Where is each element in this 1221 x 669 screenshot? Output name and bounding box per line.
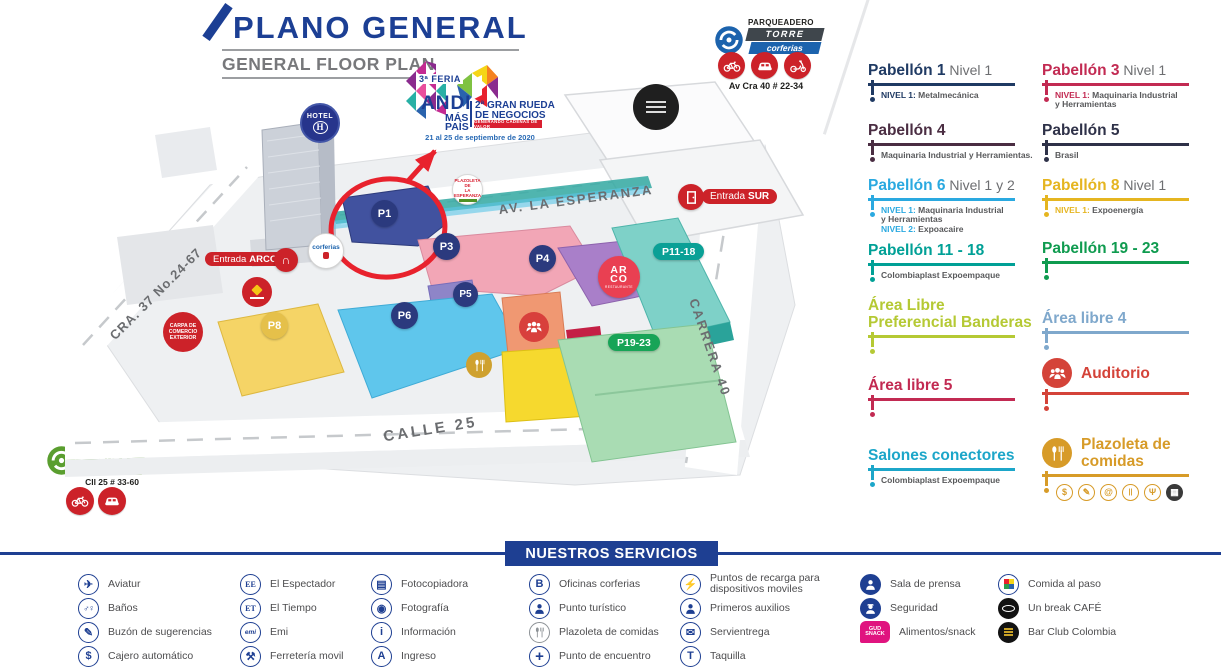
fork-icon: Ψ [1144, 484, 1161, 501]
service-item: TTaquilla [680, 646, 860, 667]
legend-entry-title: Auditorio [1081, 365, 1150, 382]
legend-entry-title: Salones conectores [868, 447, 1014, 464]
pavilion-p3-badge: P3 [433, 233, 460, 260]
service-label: El Espectador [270, 579, 335, 590]
service-item: ETEl Tiempo [240, 598, 371, 619]
service-item: +Punto de encuentro [529, 646, 680, 667]
car-icon [751, 52, 778, 79]
gudsnack-icon: GUDSNACK [860, 621, 890, 643]
firstaid-icon [680, 598, 701, 619]
service-label: Baños [108, 603, 138, 614]
legend-entry: Pabellón 6 Nivel 1 y 2NIVEL 1: Maquinari… [868, 177, 1036, 234]
service-label: Cajero automático [108, 651, 193, 662]
services-banner: NUESTROS SERVICIOS [505, 541, 718, 566]
legend-entry-sub: NIVEL 1: Maquinaria Industrialy Herramie… [1055, 91, 1221, 110]
service-label: Punto turístico [559, 603, 626, 614]
legend-entry-sub: Maquinaria Industrial y Herramientas. [881, 151, 1036, 161]
dollar-icon: $ [78, 646, 99, 667]
legend-entry-title: Pabellón 11 - 18 [868, 242, 984, 259]
legend-entry: Pabellón 1 Nivel 1NIVEL 1: Metalmecánica [868, 62, 1036, 100]
legend-entry-title: Plazoleta de comidas [1081, 436, 1221, 470]
text-EE-icon: EE [240, 574, 261, 595]
door-icon [678, 184, 704, 210]
camera-icon: ◉ [371, 598, 392, 619]
service-item: iInformación [371, 622, 529, 643]
legend-entry: Pabellón 5Brasil [1042, 122, 1221, 160]
legend-entry-rule [868, 398, 1015, 401]
pavilion-p6-badge: P6 [391, 302, 418, 329]
parking-torre-label: PARQUEADERO [748, 18, 814, 27]
service-label: Primeros auxilios [710, 603, 790, 614]
plano-general-page: PLANO GENERAL GENERAL FLOOR PLAN 3ª FERI… [0, 0, 1221, 669]
market-icon: ▦ [1166, 484, 1183, 501]
service-label: Puntos de recarga para dispositivos movi… [710, 573, 834, 595]
service-label: Alimentos/snack [899, 627, 975, 638]
restroom-icon: ♂♀ [78, 598, 99, 619]
text-B-icon: B [529, 574, 550, 595]
service-item: ⚒Ferretería movil [240, 646, 371, 667]
service-label: Taquilla [710, 651, 746, 662]
legend-entry: Auditorio [1042, 358, 1221, 395]
service-label: Buzón de sugerencias [108, 627, 212, 638]
bike-icon [66, 487, 94, 515]
plane-icon: ✈ [78, 574, 99, 595]
legend-entry-rule [1042, 392, 1189, 395]
service-label: Información [401, 627, 456, 638]
legend-entry-sub: NIVEL 1: Maquinaria Industrialy Herramie… [881, 206, 1036, 235]
service-label: El Tiempo [270, 603, 317, 614]
legend-entry: Área libre 4 [1042, 310, 1221, 334]
service-label: Plazoleta de comidas [559, 627, 659, 638]
service-item: Seguridad [860, 598, 998, 619]
legend-entry-title: Área Libre Preferencial Banderas [868, 297, 1036, 331]
pavilion-p8-badge: P8 [261, 312, 288, 339]
legend-entry-rule [868, 468, 1015, 471]
legend-entry-title: Pabellón 4 [868, 122, 946, 139]
legend-entry: Pabellón 8 Nivel 1NIVEL 1: Expoenergía [1042, 177, 1221, 215]
agora-logo-badge [633, 84, 679, 130]
legend-entry: Área libre 5 [868, 377, 1036, 401]
legend-entry-sub: NIVEL 1: Expoenergía [1055, 206, 1221, 216]
legend-entry-sub: Colombiaplast Expoempaque [881, 271, 1036, 281]
pencil-icon: ✎ [78, 622, 99, 643]
pavilion-p11-18-badge: P11-18 [653, 243, 704, 260]
service-label: Oficinas corferias [559, 579, 640, 590]
moto-icon [784, 52, 811, 79]
legend-entry-rule [1042, 198, 1189, 201]
sponsor-logo-badge [242, 277, 272, 307]
cutlery-icon [472, 358, 487, 373]
hotel-h-mark: H [313, 121, 328, 134]
people-icon [1042, 358, 1072, 388]
service-label: Fotografía [401, 603, 449, 614]
service-item: ⚡Puntos de recarga para dispositivos mov… [680, 573, 860, 595]
service-label: Sala de prensa [890, 579, 961, 590]
bars-icon: || [1122, 484, 1139, 501]
plug-icon: ⚡ [680, 574, 701, 595]
title-divider [222, 49, 519, 51]
legend-entry: Pabellón 4Maquinaria Industrial y Herram… [868, 122, 1036, 160]
corferias-badge: corferias [308, 233, 344, 269]
legend-entry: Pabellón 3 Nivel 1NIVEL 1: Maquinaria In… [1042, 62, 1221, 110]
legend-entry-rule [1042, 83, 1189, 86]
meeting-icon: + [529, 646, 550, 667]
site-map [35, 75, 865, 545]
food-court-map-icon [466, 352, 492, 378]
legend-entry-title: Pabellón 19 - 23 [1042, 240, 1159, 257]
text-emi-icon: emi [240, 622, 261, 643]
legend-entry-rule [868, 335, 1015, 338]
auditorio-map-icon [519, 312, 549, 342]
legend-entry-title: Pabellón 6 Nivel 1 y 2 [868, 177, 1015, 194]
security-icon [860, 598, 881, 619]
legend-entry-sub: NIVEL 1: Metalmecánica [881, 91, 1036, 101]
service-item: ♂♀Baños [78, 598, 240, 619]
service-item: ✉Servientrega [680, 622, 860, 643]
legend-entry-rule [868, 143, 1015, 146]
legend-entry: Plazoleta de comidas$✎@||Ψ▦ [1042, 436, 1221, 501]
people-icon [525, 318, 543, 336]
legend-entry: Área Libre Preferencial Banderas [868, 297, 1036, 338]
foodtogo-icon [998, 574, 1019, 595]
cutlery-gray-icon [529, 622, 550, 643]
service-label: Ingreso [401, 651, 436, 662]
arco-restaurante-badge: AR CO RESTAURANTE [598, 256, 640, 298]
service-item: ▤Fotocopiadora [371, 574, 529, 595]
legend-entry-title: Pabellón 3 Nivel 1 [1042, 62, 1166, 79]
service-label: Seguridad [890, 603, 938, 614]
service-label: Fotocopiadora [401, 579, 468, 590]
service-item: Un break CAFÉ [998, 598, 1198, 619]
hammer-icon: ⚒ [240, 646, 261, 667]
car-icon [98, 487, 126, 515]
pavilion-p4-badge: P4 [529, 245, 556, 272]
hotel-badge: HOTEL H [300, 103, 340, 143]
press-icon [860, 574, 881, 595]
service-item: AIngreso [371, 646, 529, 667]
service-label: Servientrega [710, 627, 770, 638]
service-item: GUDSNACKAlimentos/snack [860, 621, 998, 643]
text-i-icon: i [371, 622, 392, 643]
text-T-icon: T [680, 646, 701, 667]
pencil-icon: ✎ [1078, 484, 1095, 501]
bike-icon [718, 52, 745, 79]
service-label: Ferretería movil [270, 651, 344, 662]
legend-entry: Pabellón 11 - 18Colombiaplast Expoempaqu… [868, 242, 1036, 280]
corferias-red-mark [323, 252, 329, 259]
page-title: PLANO GENERAL [233, 10, 528, 46]
at-icon: @ [1100, 484, 1117, 501]
tourist-icon [529, 598, 550, 619]
legend-entry: Salones conectoresColombiaplast Expoempa… [868, 447, 1036, 485]
envelope-icon: ✉ [680, 622, 701, 643]
service-item: Sala de prensa [860, 574, 998, 595]
pavilion-p5-badge: P5 [453, 282, 478, 307]
service-label: Comida al paso [1028, 579, 1101, 590]
services-grid: ✈Aviatur♂♀Baños✎Buzón de sugerencias$Caj… [78, 572, 1198, 668]
text-A-icon: A [371, 646, 392, 667]
service-label: Punto de encuentro [559, 651, 651, 662]
service-item: BOficinas corferias [529, 574, 680, 595]
service-label: Aviatur [108, 579, 141, 590]
parking-torre-swirl-icon [714, 25, 744, 55]
legend-entry-rule [868, 83, 1015, 86]
legend-entry-rule [1042, 474, 1189, 477]
legend-entry-rule [1042, 143, 1189, 146]
legend-entry-sub: Colombiaplast Expoempaque [881, 476, 1036, 486]
pavilion-p19-23-badge: P19-23 [608, 334, 660, 351]
service-item: ✈Aviatur [78, 574, 240, 595]
cutlery-icon [1042, 438, 1072, 468]
carpa-comercio-exterior-badge: CARPA DE COMERCIO EXTERIOR [163, 312, 203, 352]
legend-entry-title: Área libre 4 [1042, 310, 1126, 327]
service-item: $Cajero automático [78, 646, 240, 667]
legend-entry-rule [868, 198, 1015, 201]
service-label: Emi [270, 627, 288, 638]
legend-entry-title: Área libre 5 [868, 377, 952, 394]
service-item: Primeros auxilios [680, 598, 860, 619]
legend-entry-title: Pabellón 8 Nivel 1 [1042, 177, 1166, 194]
legend-entry: Pabellón 19 - 23 [1042, 240, 1221, 264]
legend-entry-title: Pabellón 5 [1042, 122, 1120, 139]
food-court-mini-icons: $✎@||Ψ▦ [1056, 484, 1221, 501]
dollar-icon: $ [1056, 484, 1073, 501]
text-ET-icon: ET [240, 598, 261, 619]
service-item: emiEmi [240, 622, 371, 643]
service-label: Bar Club Colombia [1028, 627, 1116, 638]
entrance-sur-label: Entrada SUR [702, 189, 777, 204]
legend-entry-rule [1042, 331, 1189, 334]
arch-icon: ∩ [274, 248, 298, 272]
service-item: ◉Fotografía [371, 598, 529, 619]
service-item: Punto turístico [529, 598, 680, 619]
barclub-icon [998, 622, 1019, 643]
plazoleta-esperanza-sign: PLAZOLETA DE LA ESPERANZA [452, 174, 483, 205]
service-item: ✎Buzón de sugerencias [78, 622, 240, 643]
oma-icon [998, 598, 1019, 619]
legend-entry-rule [868, 263, 1015, 266]
header-slash-decoration [202, 3, 232, 41]
service-item: Plazoleta de comidas [529, 622, 680, 643]
parking-torre-name: TORRE [745, 28, 824, 41]
service-item: Comida al paso [998, 574, 1198, 595]
legend-entry-title: Pabellón 1 Nivel 1 [868, 62, 992, 79]
service-label: Un break CAFÉ [1028, 603, 1102, 614]
service-item: Bar Club Colombia [998, 622, 1198, 643]
copier-icon: ▤ [371, 574, 392, 595]
pavilion-p1-badge: P1 [371, 200, 398, 227]
legend-entry-rule [1042, 261, 1189, 264]
legend-entry-sub: Brasil [1055, 151, 1221, 161]
service-item: EEEl Espectador [240, 574, 371, 595]
